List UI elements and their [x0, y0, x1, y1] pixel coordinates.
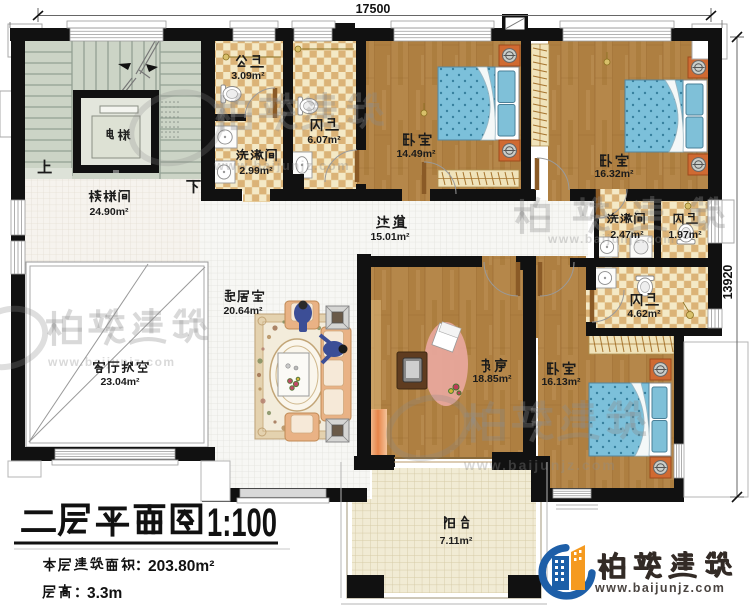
svg-text:7.11m²: 7.11m²	[440, 535, 473, 547]
svg-text:18.85m²: 18.85m²	[472, 373, 512, 385]
svg-text:203.80m²: 203.80m²	[148, 558, 214, 575]
svg-text:16.13m²: 16.13m²	[541, 376, 581, 388]
svg-text:4.62m²: 4.62m²	[627, 308, 661, 320]
svg-text:13920: 13920	[721, 265, 735, 300]
svg-text:20.64m²: 20.64m²	[223, 305, 263, 317]
svg-text:15.01m²: 15.01m²	[370, 231, 410, 243]
svg-text:：: ：	[74, 584, 88, 600]
svg-text:www.baijunjz.com: www.baijunjz.com	[213, 158, 350, 173]
svg-text:17500: 17500	[356, 2, 391, 16]
svg-text:3.09m²: 3.09m²	[231, 70, 265, 82]
svg-text:2.99m²: 2.99m²	[239, 165, 273, 177]
svg-text:6.07m²: 6.07m²	[307, 134, 341, 146]
svg-text:2.47m²: 2.47m²	[610, 229, 644, 241]
svg-text:：: ：	[135, 557, 149, 573]
svg-text:3.3m: 3.3m	[87, 585, 122, 602]
svg-text:www.baijunjz.com: www.baijunjz.com	[594, 581, 725, 595]
svg-text:16.32m²: 16.32m²	[594, 168, 634, 180]
svg-text:23.04m²: 23.04m²	[100, 376, 140, 388]
svg-text:1:100: 1:100	[207, 501, 277, 545]
svg-text:14.49m²: 14.49m²	[396, 148, 436, 160]
svg-text:1.97m²: 1.97m²	[668, 229, 702, 241]
svg-text:www.baijunjz.com: www.baijunjz.com	[463, 457, 617, 473]
svg-text:24.90m²: 24.90m²	[89, 206, 129, 218]
